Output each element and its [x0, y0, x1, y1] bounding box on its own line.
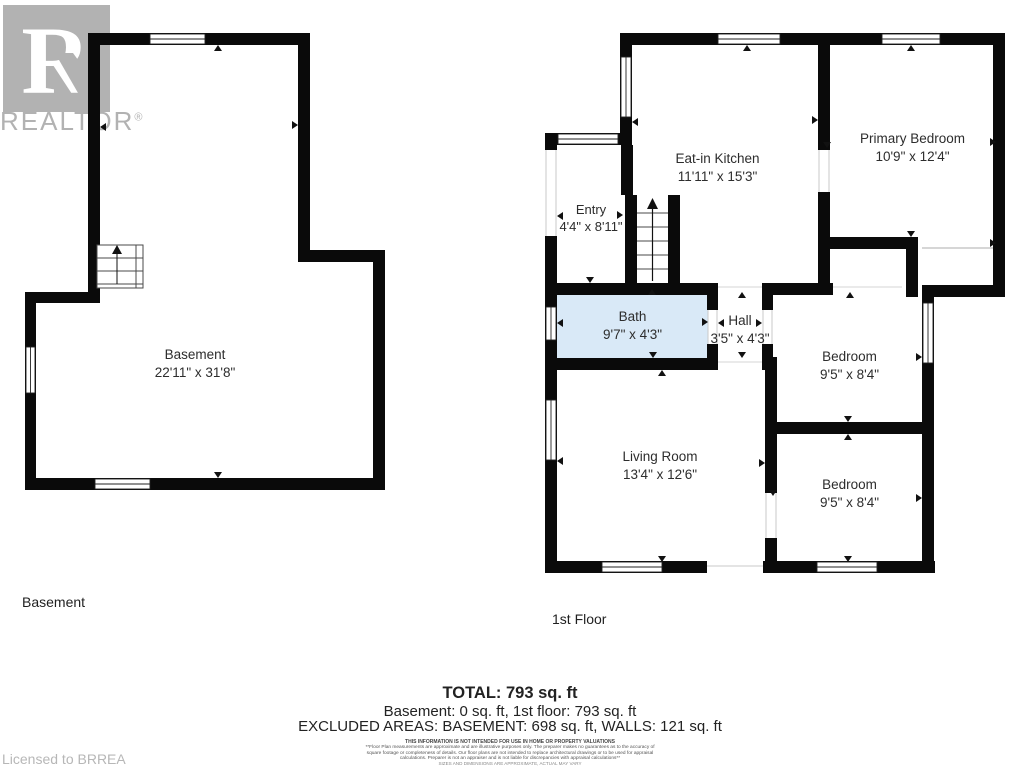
total-area-line: TOTAL: 793 sq. ft [0, 684, 1020, 703]
room-name: Eat-in Kitchen [620, 150, 815, 168]
room-label-hall: Hall 3'5" x 4'3" [690, 312, 790, 348]
room-name: Basement [95, 346, 295, 364]
room-dims: 9'5" x 8'4" [777, 366, 922, 384]
disclaimer-note: SIZES AND DIMENSIONS ARE APPROXIMATE, AC… [0, 761, 1020, 766]
room-label-bedroom-top: Bedroom 9'5" x 8'4" [777, 348, 922, 384]
room-dims: 13'4" x 12'6" [560, 466, 760, 484]
basement-floor-title: Basement [22, 594, 85, 610]
room-dims: 9'7" x 4'3" [557, 326, 708, 344]
basement-stairs [97, 245, 143, 288]
room-label-bedroom-bottom: Bedroom 9'5" x 8'4" [777, 476, 922, 512]
room-label-bath: Bath 9'7" x 4'3" [557, 308, 708, 344]
room-dims: 11'11" x 15'3" [620, 168, 815, 186]
room-dims: 3'5" x 4'3" [690, 330, 790, 348]
floorplan-page: R REALTOR® Licensed to BRREA [0, 0, 1024, 768]
basement-walls [25, 33, 385, 490]
excluded-areas-line: EXCLUDED AREAS: BASEMENT: 698 sq. ft, WA… [0, 718, 1020, 735]
room-name: Living Room [560, 448, 760, 466]
room-name: Primary Bedroom [830, 130, 995, 148]
room-label-primary-bedroom: Primary Bedroom 10'9" x 12'4" [830, 130, 995, 166]
room-dims: 10'9" x 12'4" [830, 148, 995, 166]
room-name: Bath [557, 308, 708, 326]
floorplan-canvas [0, 0, 1024, 768]
room-dims: 4'4" x 8'11" [540, 218, 642, 235]
room-label-basement: Basement 22'11" x 31'8" [95, 346, 295, 382]
room-name: Bedroom [777, 476, 922, 494]
disclaimer-body-text: **Floor Plan measurements are approximat… [360, 745, 660, 762]
disclaimer-body: **Floor Plan measurements are approximat… [0, 745, 1020, 762]
room-name: Entry [540, 201, 642, 218]
room-label-kitchen: Eat-in Kitchen 11'11" x 15'3" [620, 150, 815, 186]
room-dims: 9'5" x 8'4" [777, 494, 922, 512]
first-floor-title: 1st Floor [552, 611, 606, 627]
room-dims: 22'11" x 31'8" [95, 364, 295, 382]
room-name: Bedroom [777, 348, 922, 366]
room-label-living-room: Living Room 13'4" x 12'6" [560, 448, 760, 484]
room-label-entry: Entry 4'4" x 8'11" [540, 201, 642, 235]
room-name: Hall [690, 312, 790, 330]
